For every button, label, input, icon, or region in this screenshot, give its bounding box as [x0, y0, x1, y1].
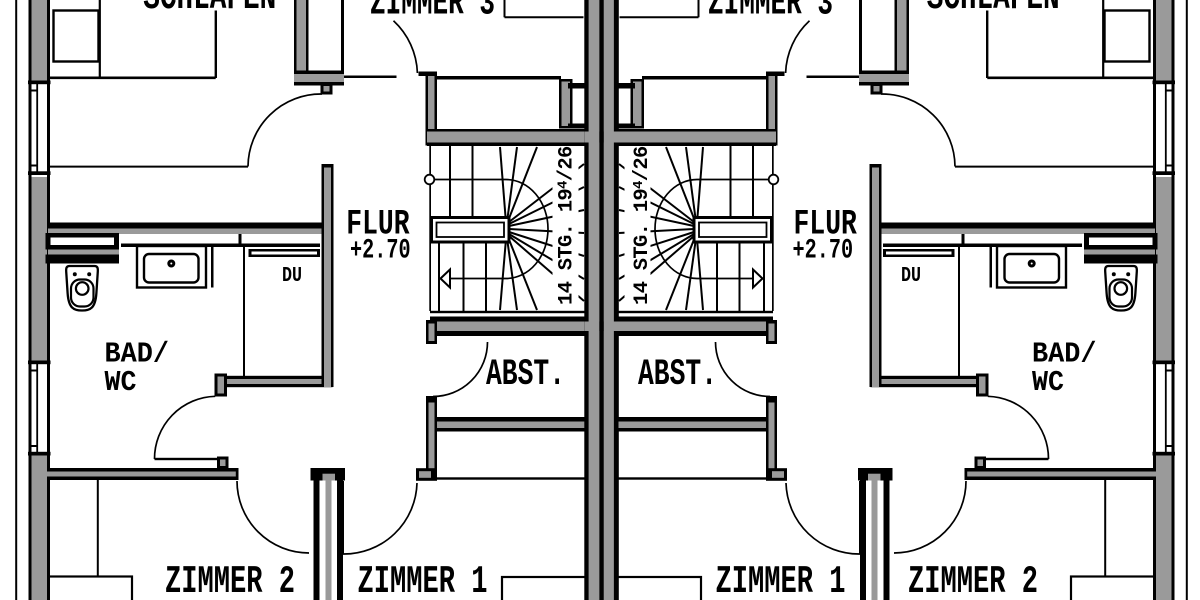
svg-text:WC: WC — [105, 366, 137, 399]
svg-text:14 STG. 194/26: 14 STG. 194/26 — [556, 146, 579, 305]
svg-text:DU: DU — [901, 265, 921, 288]
svg-text:ZIMMER 2: ZIMMER 2 — [908, 560, 1038, 600]
svg-text:ZIMMER 3: ZIMMER 3 — [370, 0, 495, 25]
svg-text:DU: DU — [282, 265, 302, 288]
svg-text:ZIMMER 1: ZIMMER 1 — [716, 560, 846, 600]
svg-text:+2.70: +2.70 — [350, 236, 411, 267]
svg-text:ABST.: ABST. — [638, 354, 717, 396]
svg-text:SCHLAFEN: SCHLAFEN — [927, 0, 1060, 20]
svg-text:+2.70: +2.70 — [793, 236, 854, 267]
svg-text:ABST.: ABST. — [486, 354, 565, 396]
svg-text:ZIMMER 3: ZIMMER 3 — [708, 0, 833, 25]
svg-text:ZIMMER 2: ZIMMER 2 — [165, 560, 295, 600]
svg-text:ZIMMER 1: ZIMMER 1 — [358, 560, 488, 600]
svg-text:WC: WC — [1032, 366, 1064, 399]
svg-text:14 STG. 194/26: 14 STG. 194/26 — [631, 146, 654, 305]
svg-text:SCHLAFEN: SCHLAFEN — [143, 0, 276, 20]
